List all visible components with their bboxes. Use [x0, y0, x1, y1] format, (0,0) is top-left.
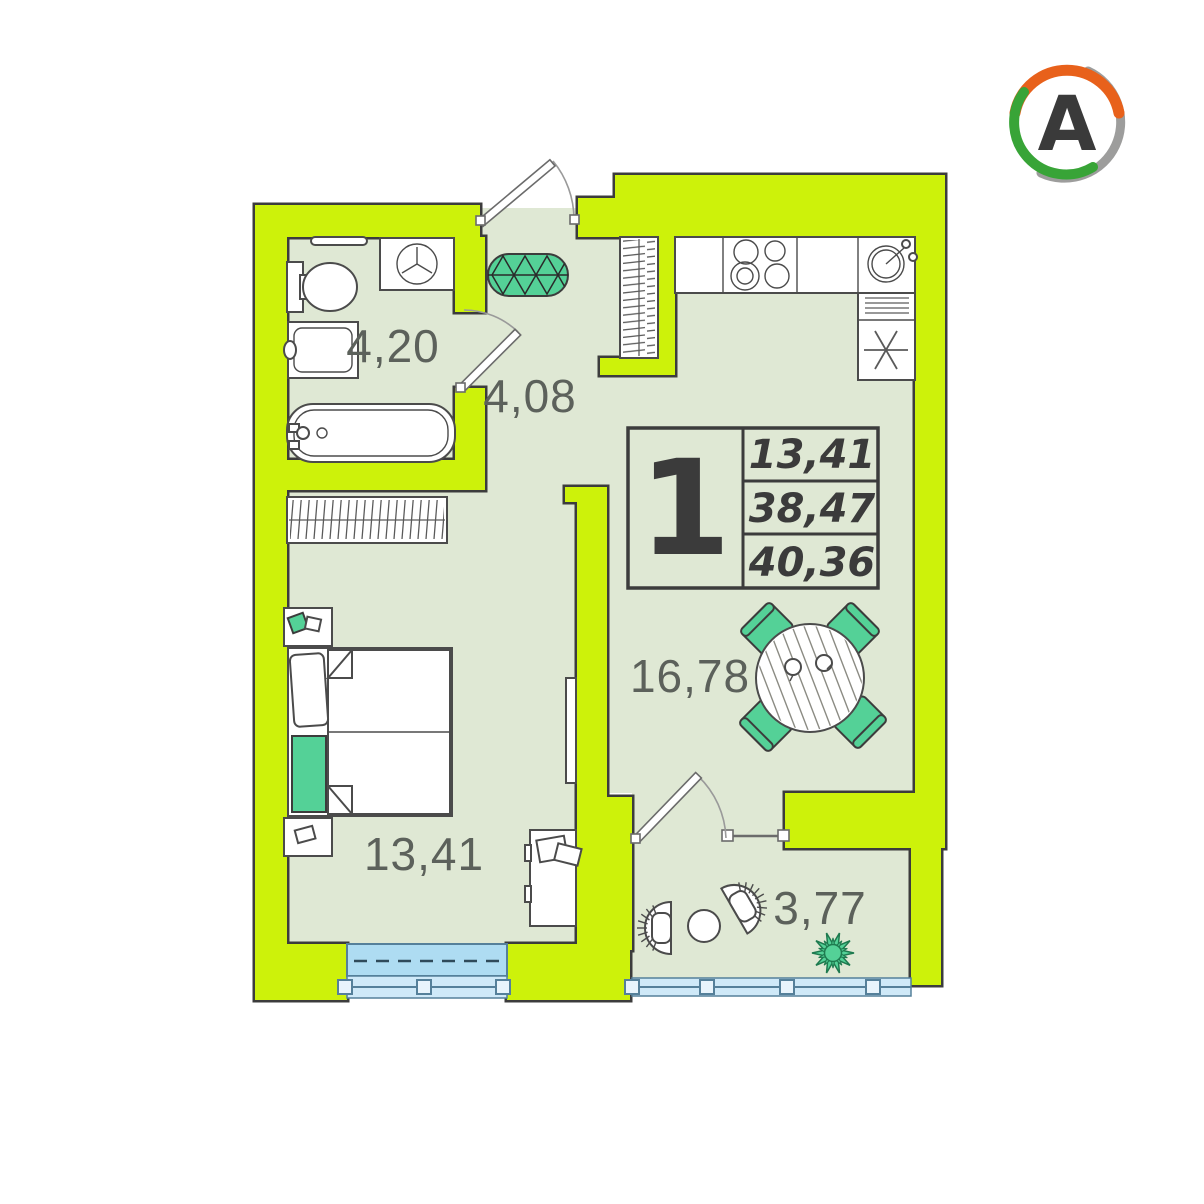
bed: [288, 648, 452, 816]
bedroom-window: [338, 944, 510, 998]
balcony-glazing: [625, 978, 911, 996]
living-area-value: 13,41: [749, 432, 876, 478]
desk: [525, 830, 582, 926]
area-without-balcony-value: 38,47: [749, 486, 876, 532]
bedroom-area-label: 13,41: [364, 828, 484, 880]
rooms-count: 1: [639, 432, 731, 586]
brand-logo: A: [1014, 70, 1121, 178]
bathroom-area-label: 4,20: [346, 320, 440, 372]
hallway-area-label: 4,08: [483, 370, 577, 422]
floor-plan-page: 1 13,41 38,47 40,36 4,20 4,08 13,41 16,7…: [0, 0, 1204, 1204]
total-area-value: 40,36: [748, 540, 876, 586]
washing-machine: [380, 238, 454, 290]
balcony-table: [688, 910, 720, 942]
info-box: 1 13,41 38,47 40,36: [628, 428, 878, 588]
cup: [785, 659, 801, 675]
toilet: [287, 262, 357, 312]
kitchen-counter: [675, 237, 915, 293]
green-blanket: [292, 736, 326, 812]
nightstand: [284, 818, 332, 856]
nightstand: [284, 608, 332, 646]
bedroom-wardrobe: [287, 497, 447, 543]
kitchen-area-label: 16,78: [630, 650, 750, 702]
wall-tv: [566, 678, 576, 783]
cup: [816, 655, 832, 671]
hallway-rug: [488, 254, 568, 296]
pillow: [290, 653, 329, 727]
balcony-area-label: 3,77: [773, 882, 867, 934]
hall-closet: [620, 237, 658, 358]
bathtub: [287, 404, 455, 462]
shelf: [311, 237, 367, 245]
logo-letter: A: [1038, 79, 1097, 168]
floor-plan-canvas: 1 13,41 38,47 40,36 4,20 4,08 13,41 16,7…: [0, 0, 1204, 1204]
